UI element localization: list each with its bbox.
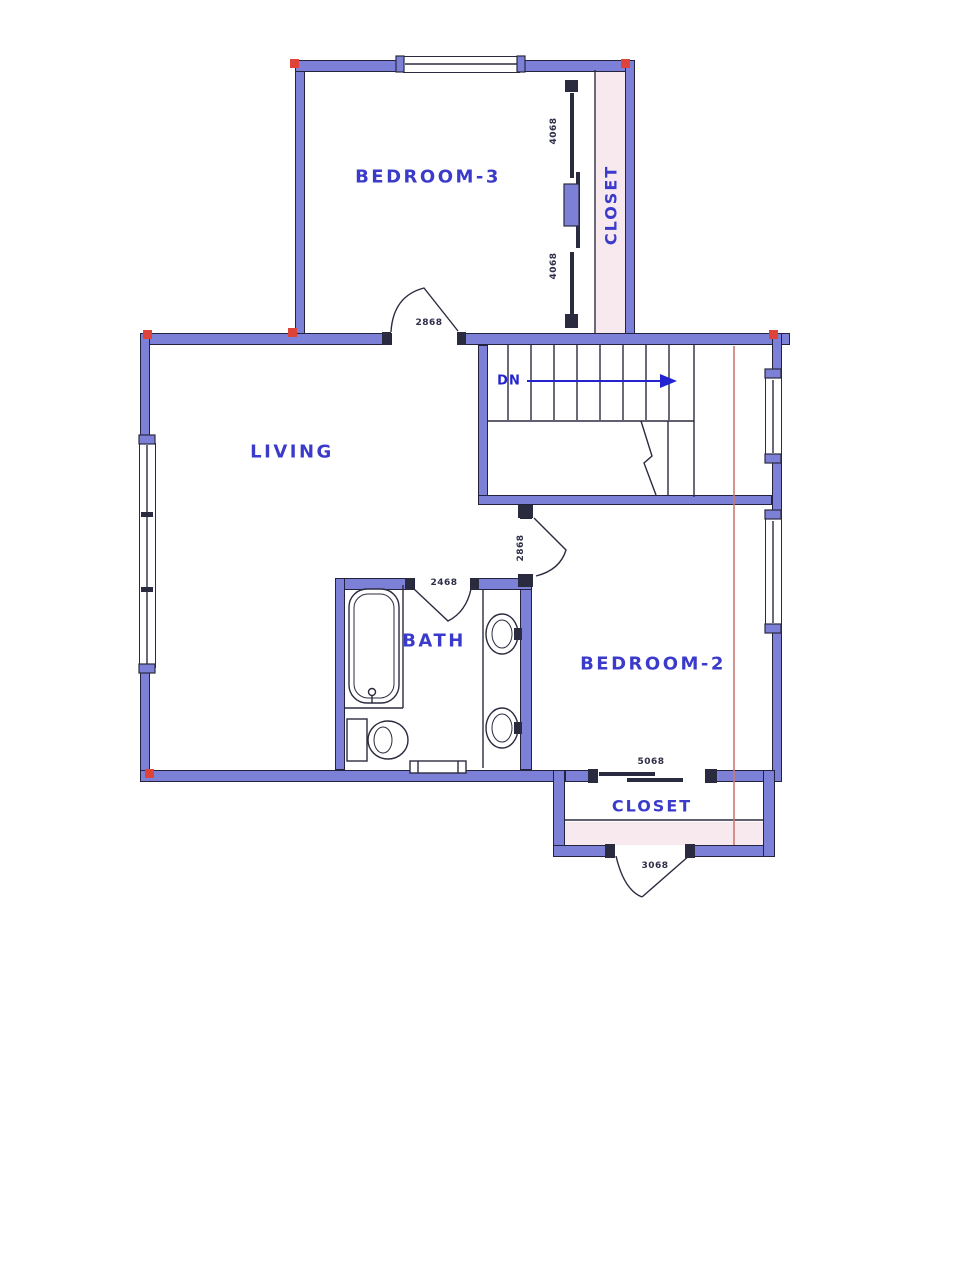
stairs-dn-label: DN bbox=[497, 374, 521, 389]
toilet-bowl-inner bbox=[374, 727, 392, 753]
sliding-door-panel bbox=[570, 252, 574, 314]
door-jamb-post bbox=[565, 80, 578, 92]
dimension-label-closet3-upper: 4068 bbox=[549, 117, 559, 144]
sink bbox=[486, 708, 518, 748]
wall bbox=[518, 60, 635, 72]
dimension-label-closet2-slider: 5068 bbox=[637, 757, 664, 767]
wall bbox=[772, 455, 782, 519]
toilet-bowl bbox=[368, 721, 408, 759]
wall bbox=[140, 666, 150, 782]
sliding-door-panel bbox=[570, 93, 574, 178]
bath-door-swing bbox=[414, 589, 471, 621]
corner-marker bbox=[290, 59, 299, 68]
corner-marker bbox=[288, 328, 297, 337]
sliding-door-panel bbox=[576, 172, 580, 248]
wall bbox=[295, 60, 305, 345]
sink-basin bbox=[492, 620, 512, 648]
stair-break-line bbox=[641, 421, 656, 495]
tub-drain bbox=[369, 689, 376, 696]
toilet-tank bbox=[347, 719, 367, 761]
window-bedroom3-top bbox=[403, 56, 520, 73]
wall bbox=[625, 60, 635, 345]
window-living-left bbox=[139, 443, 156, 668]
sink-basin bbox=[492, 714, 512, 742]
door-jamb-post bbox=[565, 314, 578, 328]
room-label-bedroom-2: BEDROOM-2 bbox=[580, 654, 726, 675]
sliding-door-panel bbox=[627, 778, 683, 782]
room-label-bedroom-3: BEDROOM-3 bbox=[355, 167, 501, 188]
bathtub bbox=[349, 589, 399, 703]
corner-marker bbox=[143, 330, 152, 339]
wall bbox=[553, 770, 565, 857]
dimension-label-bedroom3-door: 2868 bbox=[415, 318, 442, 328]
window-bedroom2-right bbox=[765, 518, 782, 627]
window-caps bbox=[139, 56, 781, 673]
wall bbox=[772, 333, 782, 379]
sink bbox=[486, 614, 518, 654]
wall bbox=[335, 578, 345, 770]
wall bbox=[478, 495, 772, 505]
wall bbox=[140, 333, 150, 445]
wall bbox=[772, 625, 782, 782]
dimension-label-closet2-door: 3068 bbox=[641, 861, 668, 871]
wall bbox=[295, 60, 403, 72]
dn-arrow-icon bbox=[527, 374, 677, 388]
sliding-door-mullion bbox=[564, 184, 579, 226]
room-label-closet-2: CLOSET bbox=[612, 797, 692, 816]
wall bbox=[140, 333, 392, 345]
sliding-door-panel bbox=[599, 772, 655, 776]
wall bbox=[140, 770, 567, 782]
room-label-closet-3: CLOSET bbox=[602, 165, 621, 245]
bedroom2-closet-fill bbox=[565, 822, 763, 845]
tub-enclosure bbox=[345, 585, 403, 708]
dimension-label-closet3-lower: 4068 bbox=[549, 252, 559, 279]
room-label-bath: BATH bbox=[402, 631, 466, 652]
wall bbox=[763, 770, 775, 857]
wall bbox=[520, 575, 532, 770]
floor-plan-canvas: BEDROOM-3 CLOSET LIVING BATH BEDROOM-2 C… bbox=[0, 0, 960, 1274]
dimension-label-bedroom2-door: 2868 bbox=[516, 534, 526, 561]
bedroom2-door-swing bbox=[534, 518, 566, 576]
corner-marker bbox=[621, 59, 630, 68]
corner-marker bbox=[145, 769, 154, 778]
wall bbox=[553, 845, 615, 857]
wall bbox=[520, 505, 532, 519]
window-hall-right bbox=[765, 377, 782, 457]
wall bbox=[565, 770, 593, 782]
stair-treads bbox=[508, 345, 669, 495]
wall bbox=[335, 578, 415, 590]
corner-marker bbox=[769, 330, 778, 339]
dimension-label-bath-door: 2468 bbox=[430, 578, 457, 588]
wall bbox=[458, 333, 790, 345]
room-label-living: LIVING bbox=[250, 442, 334, 463]
bathtub-inner bbox=[354, 594, 394, 698]
wall bbox=[470, 578, 532, 590]
wall bbox=[478, 345, 488, 497]
